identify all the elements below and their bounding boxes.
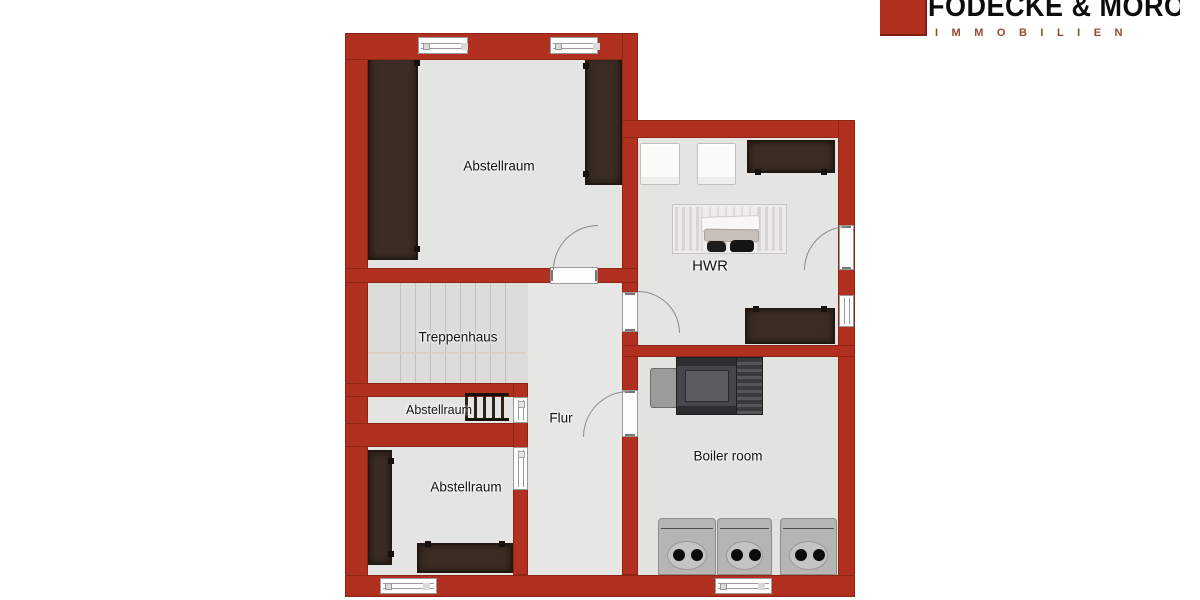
laundry-dark <box>707 241 726 252</box>
window <box>715 578 772 594</box>
logo-mark <box>880 0 927 36</box>
door-opening <box>622 292 638 332</box>
drying-rack-right-panel <box>758 207 784 251</box>
tank-cap <box>691 549 703 561</box>
logo-company-name: FÖDECKE & MOROLD <box>928 0 1180 27</box>
window <box>418 37 468 54</box>
laundry-dark <box>730 240 754 252</box>
room-label-abstellraum-bottom: Abstellraum <box>430 480 501 495</box>
drying-rack-left-panel <box>675 207 701 251</box>
storage-shelf <box>368 52 418 260</box>
wall-abstellraum-narrow-bottom <box>345 423 528 447</box>
storage-shelf <box>368 450 392 565</box>
tank-cap <box>731 549 743 561</box>
heating-tank <box>717 518 772 575</box>
heating-tank <box>658 518 716 575</box>
boiler <box>650 357 763 415</box>
storage-shelf <box>747 140 835 173</box>
tank-cap <box>813 549 825 561</box>
logo-company-name-text: FÖDECKE & MOROLD <box>928 0 1180 23</box>
wall-outer-left <box>345 33 368 597</box>
drying-rack <box>672 204 787 254</box>
wall-opening <box>513 447 528 490</box>
wall-hwr-top <box>622 120 855 138</box>
storage-shelf <box>745 308 835 344</box>
tank-cap <box>795 549 807 561</box>
room-label-hwr: HWR <box>692 258 728 275</box>
stair-landing-line <box>368 352 526 354</box>
heating-tank <box>780 518 837 575</box>
room-label-flur: Flur <box>549 411 572 426</box>
boiler-body <box>676 357 738 415</box>
tank-cap <box>673 549 685 561</box>
storage-shelf <box>417 543 513 573</box>
boiler-grill <box>736 357 763 415</box>
room-label-boiler-room: Boiler room <box>693 449 762 464</box>
washing-machine <box>640 143 680 185</box>
wall-outer-right <box>838 120 855 597</box>
room-label-abstellraum-top: Abstellraum <box>463 159 534 174</box>
room-label-treppenhaus: Treppenhaus <box>418 330 497 345</box>
room-label-abstellraum-narrow: Abstellraum <box>406 403 472 417</box>
dryer-machine <box>697 143 736 185</box>
wall-boiler-top <box>622 345 855 357</box>
window <box>380 578 437 594</box>
window <box>839 295 854 327</box>
storage-shelf <box>585 55 622 185</box>
logo-division-text: IMMOBILIEN <box>935 27 1136 39</box>
tank-cap <box>749 549 761 561</box>
wall-opening <box>513 397 528 423</box>
window <box>550 37 598 54</box>
